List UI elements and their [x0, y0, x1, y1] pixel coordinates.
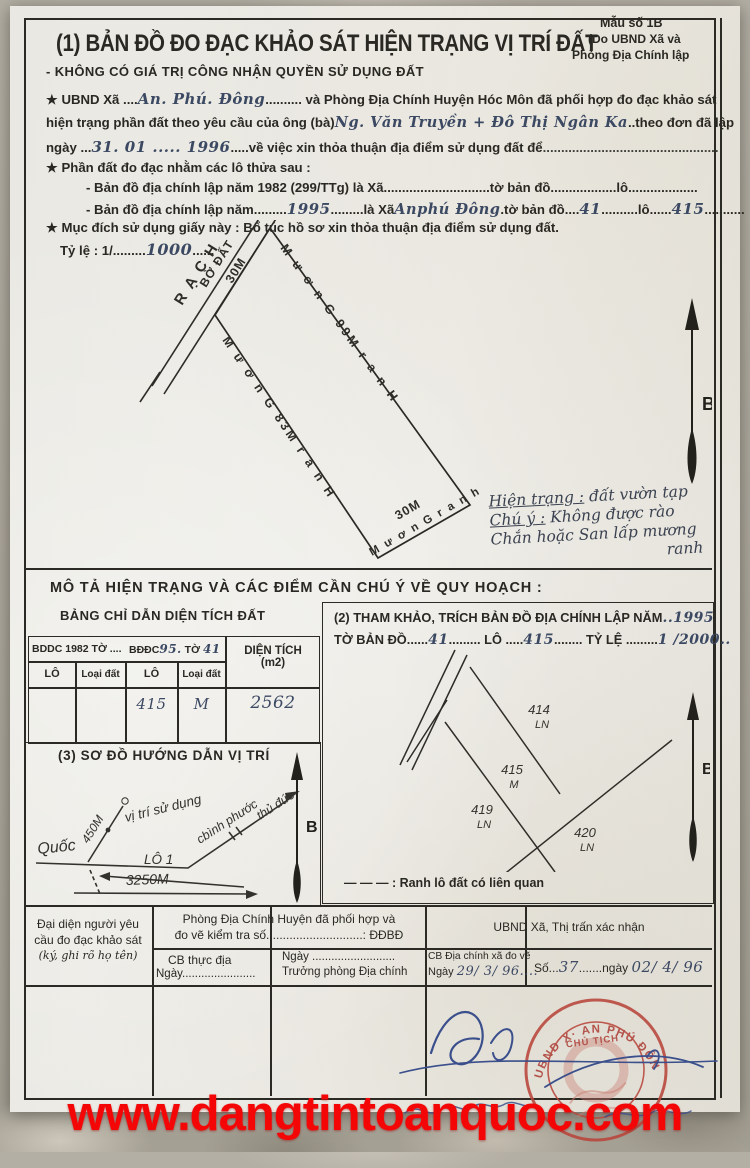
- request-date-handwritten: 31. 01 ..... 1996: [91, 138, 230, 156]
- intro-line1-pre: ★ UBND Xã ....: [46, 92, 138, 107]
- intro-line-2: hiện trạng phần đất theo yêu cầu của ông…: [46, 114, 734, 131]
- area-h-loaidat2: Loại đất: [178, 669, 225, 680]
- page-title: (1) BẢN ĐỒ ĐO ĐẠC KHẢO SÁT HIỆN TRẠNG VỊ…: [56, 30, 597, 58]
- intro-line1-post: .......... và Phòng Địa Chính Huyện Hóc …: [265, 92, 716, 107]
- area-col-95-hw-year: 95.: [159, 642, 181, 656]
- intro-line2-pre: hiện trạng phần đất theo yêu cầu của ông…: [46, 115, 335, 130]
- area-table-title: BẢNG CHỈ DẪN DIỆN TÍCH ĐẤT: [60, 608, 265, 623]
- section2-lot-handwritten: 415: [523, 632, 554, 648]
- area-h-lo2: LÔ: [126, 668, 177, 680]
- edge-right-label: M ư ơ n G 99M r a n H: [278, 242, 403, 406]
- survey-date-handwritten: 29/ 3/ 96....: [457, 964, 538, 979]
- intro-line2-post: ..theo đơn đã lập: [628, 115, 734, 130]
- watermark-url: www.dangtintoanquoc.com: [12, 1086, 738, 1142]
- dashed-continuation: [90, 870, 100, 894]
- footer-cellD: Số...37.......ngày 02/ 4/ 96: [534, 958, 703, 976]
- cadastral-sketch: 414 LN 415 M 419 LN 420 LN B: [324, 648, 710, 872]
- edge-bottom-label: M ư ơ n G r a n h: [368, 485, 484, 559]
- intro-line-5: - Bản đồ địa chính lập năm 1982 (299/TTg…: [86, 180, 698, 195]
- area-col-dientich-2: (m2): [229, 657, 317, 669]
- measure-arrowhead-left: [99, 872, 110, 881]
- footer-col2-header1: Phòng Địa Chính Huyện đã phối hợp và: [154, 911, 424, 927]
- footer-cellB-1: Ngày ..........................: [282, 951, 395, 963]
- intro-line-4: ★ Phần đất đo đạc nhằm các lô thửa sau :: [46, 160, 311, 176]
- north-arrow-section2: B: [687, 692, 710, 862]
- parcel-419-label: 419: [471, 802, 493, 817]
- footer-h1: [152, 948, 712, 950]
- section2-title-pre: (2) THAM KHẢO, TRÍCH BẢN ĐỒ ĐỊA CHÍNH LẬ…: [334, 610, 662, 625]
- footer-col3-header: UBND Xã, Thị trấn xác nhận: [427, 920, 711, 934]
- footer-col1-line3: (ký, ghi rõ họ tên): [24, 948, 152, 964]
- intro-line6-pre: - Bản đồ địa chính lập năm.........: [86, 202, 287, 217]
- highway-label: Quốc: [37, 837, 77, 858]
- page-frame-double-right: [720, 18, 722, 1098]
- map-sheet-handwritten: 41: [579, 200, 601, 218]
- area-col-1982: BDDC 1982 TỜ ....: [32, 643, 121, 655]
- footer-col1-line1: Đại diện người yêu: [24, 916, 152, 932]
- edge-left-label: M ư ơ n G 83M r a n H: [220, 334, 339, 502]
- footer-cellD-pre: Số...: [534, 961, 559, 975]
- area-col-95-pre: BĐĐC: [129, 644, 159, 656]
- area-h-lo1: LÔ: [29, 668, 75, 680]
- intro-line3-dots: ........................................…: [543, 140, 719, 155]
- footer-cellC-2-pre: Ngày: [428, 966, 454, 978]
- area-h-loaidat1: Loại đất: [76, 669, 125, 680]
- area-col-95: BĐĐC95. TỜ 41: [129, 642, 221, 656]
- section2-sheet-pre: TỜ BẢN ĐỒ......: [334, 632, 428, 647]
- commune-name-handwritten: An. Phú. Đông: [138, 90, 266, 108]
- parcel-line-left: [445, 722, 555, 872]
- distance-label: 3250M: [126, 871, 170, 888]
- intro-line-3: ngày ...31. 01 ..... 1996.....về việc xi…: [46, 138, 719, 156]
- long-arrow: [74, 893, 252, 894]
- parcel-boundary: [215, 228, 470, 558]
- lot1-label: LÔ 1: [144, 852, 173, 867]
- section2-legend: — — — : Ranh lô đất có liên quan: [344, 876, 544, 890]
- status-note-handwritten: Hiện trạng : đất vườn tạp Chú ý : Không …: [488, 479, 744, 568]
- parcel-415-type: M: [509, 779, 519, 791]
- footer-col2-header: Phòng Địa Chính Huyện đã phối hợp và đo …: [154, 911, 424, 943]
- parcel-420-type: LN: [580, 842, 594, 854]
- parcel-415-label: 415: [501, 762, 523, 777]
- map-commune-handwritten: Anphú Đông: [394, 201, 500, 218]
- section2-scale-handwritten: 1 /2000..: [658, 632, 731, 648]
- footer-col2-header2: đo vẽ kiểm tra số.......................…: [154, 927, 424, 943]
- footer-cellC-1: CB Địa chính xã đo vẽ: [428, 951, 530, 962]
- intro-line-1: ★ UBND Xã ....An. Phú. Đông.......... và…: [46, 90, 716, 108]
- footer-cellA-1: CB thực địa: [168, 953, 231, 967]
- note-label-2: Chú ý :: [489, 509, 546, 530]
- footer-table-top: [24, 905, 712, 907]
- area-col-95-hw-sheet: 41: [203, 642, 221, 656]
- site-circle: [122, 798, 128, 804]
- location-sketch: 450M vị trí sử dụng Quốc LÔ 1 3250M cbìn…: [24, 742, 320, 905]
- intro-line3-pre: ngày ...: [46, 140, 91, 155]
- map-year-handwritten: 1995: [287, 200, 331, 218]
- intro-line6-d4: ...........: [704, 202, 744, 217]
- long-arrowhead-right: [246, 890, 258, 899]
- intro-line3-post: .....về việc xin thỏa thuận địa điểm sử …: [230, 140, 542, 155]
- legend-text: : Ranh lô đất có liên quan: [392, 876, 544, 890]
- footer-col1: Đại diện người yêu cầu đo đạc khảo sát (…: [24, 916, 152, 964]
- section2-scale-pre: ........ TỶ LỆ .........: [554, 632, 658, 647]
- parcel-414-label: 414: [528, 702, 550, 717]
- section2-title-1: (2) THAM KHẢO, TRÍCH BẢN ĐỒ ĐỊA CHÍNH LẬ…: [334, 610, 714, 626]
- north-label-map1: B: [702, 394, 712, 414]
- requester-name-handwritten: Ng. Văn Truyền + Đô Thị Ngân Ka: [335, 114, 628, 131]
- binhphuoc-label: cbình phước: [194, 796, 261, 846]
- map-lot-handwritten: 415: [672, 200, 705, 218]
- doc-number-handwritten: 37: [559, 958, 579, 976]
- form-note-2: (Do UBND Xã và: [588, 32, 681, 46]
- area-col-dientich: DIỆN TÍCH (m2): [229, 645, 317, 669]
- section2-sheet-handwritten: 41: [428, 632, 448, 648]
- north-label-section3: B: [306, 819, 318, 836]
- footer-cellC-2: Ngày 29/ 3/ 96....: [428, 964, 538, 979]
- parcel-414-type: LN: [535, 719, 549, 731]
- area-row-type: M: [178, 695, 225, 713]
- north-arrow-map1: B: [685, 298, 712, 484]
- section2-lot-pre: ......... LÔ .....: [449, 632, 524, 647]
- area-row-lot: 415: [126, 695, 177, 713]
- page-subtitle: - KHÔNG CÓ GIÁ TRỊ CÔNG NHẬN QUYỀN SỬ DỤ…: [46, 64, 424, 79]
- parcel-420-label: 420: [574, 825, 596, 840]
- site-dot: [106, 828, 111, 833]
- intro-line-6: - Bản đồ địa chính lập năm.........1995.…: [86, 200, 745, 218]
- legend-dash-symbol: — — —: [344, 876, 388, 890]
- form-note-1: Mẫu số 1B: [600, 16, 663, 30]
- site-label: vị trí sử dụng: [123, 791, 203, 825]
- describe-heading: MÔ TẢ HIỆN TRẠNG VÀ CÁC ĐIỂM CẦN CHÚ Ý V…: [50, 580, 542, 596]
- north-arrow-section3: B: [291, 752, 318, 903]
- intro-line6-d3: ..........lô......: [601, 202, 671, 217]
- footer-cellB-2: Trưởng phòng Địa chính: [282, 966, 407, 978]
- north-label-section2: B: [702, 761, 710, 778]
- thuduc-label: thủ đức: [254, 788, 297, 823]
- footer-cellD-mid: .......ngày: [579, 961, 628, 975]
- road-line-1: [400, 650, 455, 765]
- branch-distance: 450M: [79, 813, 107, 846]
- area-col-dientich-1: DIỆN TÍCH: [229, 645, 317, 657]
- intro-line6-d2: .tờ bản đồ....: [500, 202, 579, 217]
- footer-cellA-2: Ngày.......................: [156, 968, 255, 980]
- section-divider: [24, 568, 712, 570]
- footer-col1-line2: cầu đo đạc khảo sát: [24, 932, 152, 948]
- area-row-area: 2562: [229, 693, 317, 713]
- intro-line6-d1: .........là Xã: [331, 202, 395, 217]
- form-note-3: Phòng Địa Chính lập: [572, 48, 689, 62]
- area-col-95-mid: TỜ: [185, 644, 200, 656]
- section2-year-handwritten: ..1995: [662, 610, 714, 626]
- area-table: BDDC 1982 TỜ .... BĐĐC95. TỜ 41 DIỆN TÍC…: [28, 636, 320, 744]
- parcel-419-type: LN: [477, 819, 491, 831]
- section2-title-2: TỜ BẢN ĐỒ......41......... LÔ .....415..…: [334, 632, 731, 648]
